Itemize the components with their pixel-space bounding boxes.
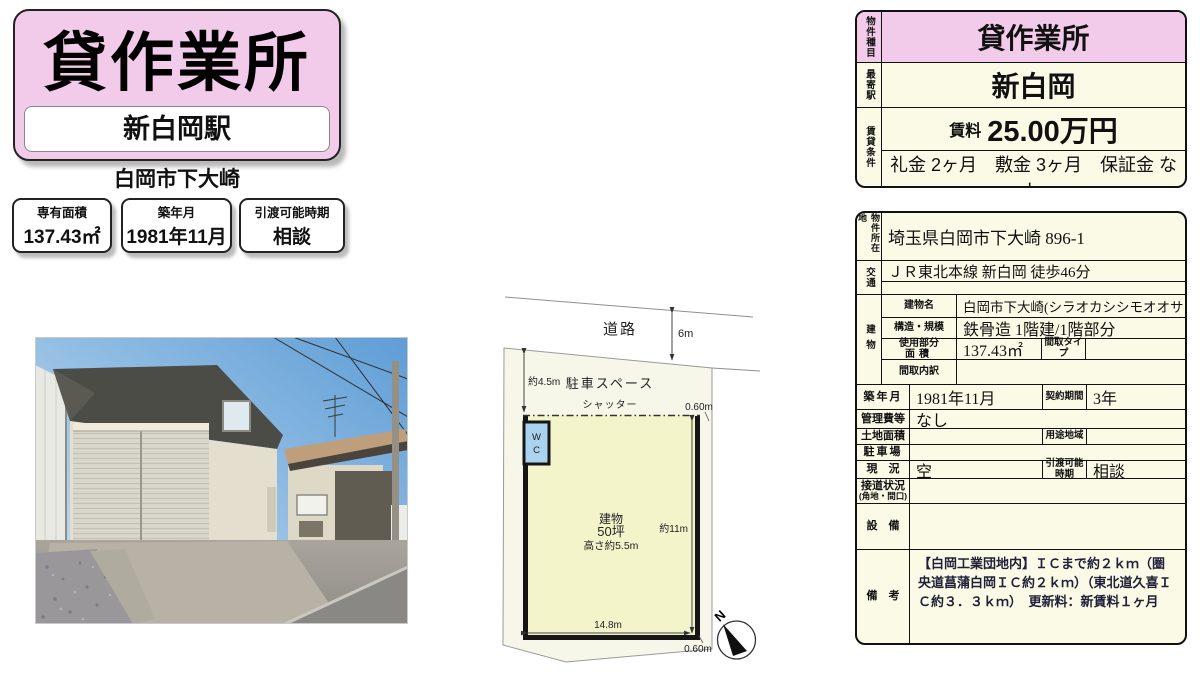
- equipment-box: [299, 521, 323, 537]
- handover-label-line1: 引渡可能: [1045, 459, 1083, 470]
- parking-label: 駐車スペース: [566, 376, 654, 391]
- badge-label: 引渡可能時期: [241, 206, 343, 220]
- north-compass: N: [711, 607, 755, 659]
- property-type-title: 貸作業所: [15, 13, 339, 113]
- parking-label: 駐車場: [857, 445, 910, 460]
- flyer-page: 貸作業所 新白岡駅 白岡市下大崎 専有面積 137.43㎡ 築年月 1981年1…: [0, 0, 1200, 692]
- row-status: 現 況 空 引渡可能 時期 相談: [857, 461, 1185, 479]
- management-value: なし: [910, 410, 1185, 428]
- road-label: 道路: [603, 321, 637, 338]
- row-structure: 構造・規模 鉄骨造 1階建/1階部分: [882, 318, 1185, 339]
- rent-cell: 賃料 25.00万円: [882, 108, 1185, 150]
- badge-built: 築年月 1981年11月: [121, 198, 232, 253]
- row-building-name: 建物名 白岡市下大崎(シラオカシシモオオサキ): [882, 295, 1185, 318]
- front-length-label: 14.8m: [594, 620, 622, 631]
- row-area: 使用部分 面積 137.43㎡ 間取タイプ: [882, 339, 1185, 360]
- row-access: 交通 ＪＲ東北本線 新白岡 徒歩46分: [857, 261, 1185, 295]
- row-building-group: 建物 建物名 白岡市下大崎(シラオカシシモオオサキ) 構造・規模 鉄骨造 1階建…: [857, 295, 1185, 385]
- structure-value: 鉄骨造 1階建/1階部分: [957, 318, 1185, 338]
- row-built: 築年月 1981年11月 契約期間 3年: [857, 385, 1185, 410]
- detail-table: 物件所在地 埼玉県白岡市下大崎 896-1 交通 ＪＲ東北本線 新白岡 徒歩46…: [855, 211, 1187, 645]
- property-type-value: 貸作業所: [882, 12, 1185, 62]
- side-building: [284, 429, 408, 543]
- access-label: 交通: [857, 261, 882, 294]
- side-window: [297, 495, 327, 515]
- row-terms: 賃貸条件 賃料 25.00万円 礼金 2ヶ月 敷金 3ヶ月 保証金 なし: [857, 108, 1185, 186]
- equipment-value: [910, 504, 1185, 549]
- north-label: N: [711, 607, 728, 624]
- station-value: 新白岡: [882, 63, 1185, 107]
- building-height-label: 高さ約5.5m: [584, 539, 639, 552]
- contract-value: 3年: [1087, 385, 1185, 409]
- wc-label-w: W: [532, 432, 541, 443]
- handover-value: 相談: [1087, 461, 1185, 478]
- badge-label: 専有面積: [14, 206, 110, 220]
- handover-label: 引渡可能 時期: [1043, 461, 1087, 478]
- badge-value: 137.43㎡: [14, 222, 110, 249]
- badge-label: 築年月: [123, 206, 230, 220]
- row-land: 土地面積 用途地域: [857, 429, 1185, 445]
- row-road-contact: 接道状況 (角地・間口): [857, 479, 1185, 504]
- row-station: 最寄駅 新白岡: [857, 63, 1185, 108]
- rent-value: 25.00万円: [987, 108, 1118, 150]
- layout-type-label: 間取タイプ: [1042, 339, 1086, 359]
- layout-type-value: [1086, 339, 1185, 359]
- area-label: 使用部分 面積: [882, 339, 957, 359]
- building-size-label: 50坪: [597, 524, 624, 539]
- gable-window: [223, 401, 250, 431]
- rent-label: 賃料: [949, 117, 981, 141]
- building-name-value: 白岡市下大崎(シラオカシシモオオサキ): [957, 295, 1185, 317]
- city-label: 白岡市下大崎: [13, 163, 341, 193]
- row-property-type: 物件種目 貸作業所: [857, 12, 1185, 63]
- building-name-label: 建物名: [882, 295, 957, 317]
- fees-value: 礼金 2ヶ月 敷金 3ヶ月 保証金 なし: [882, 151, 1185, 188]
- address-label: 物件所在地: [857, 213, 882, 260]
- structure-label: 構造・規模: [882, 318, 957, 338]
- badge-value: 1981年11月: [123, 222, 230, 249]
- side-length-label: 約11m: [659, 522, 688, 535]
- gap-bottom-label: 0.60m: [684, 644, 712, 655]
- station-label: 最寄駅: [857, 63, 882, 107]
- remarks-value: 【白岡工業団地内】ＩＣまで約２ｋｍ（圏央道菖蒲白岡ＩＣ約２ｋｍ）（東北道久喜ＩＣ…: [910, 550, 1185, 643]
- property-photo: [35, 337, 408, 624]
- wc-box: [524, 422, 549, 464]
- road-line-lower: [712, 368, 760, 371]
- land-value: [910, 429, 1043, 444]
- layout-detail-value: [957, 360, 1185, 384]
- road-line-upper: [505, 297, 753, 317]
- road-label-line2: (角地・間口): [859, 492, 907, 502]
- road-contact-value: [910, 479, 1185, 503]
- row-fees: 礼金 2ヶ月 敷金 3ヶ月 保証金 なし: [882, 151, 1185, 188]
- built-label: 築年月: [857, 385, 910, 409]
- shutter-label: シャッター: [583, 399, 638, 411]
- canopy-shadow: [335, 471, 393, 541]
- access-line1: ＪＲ東北本線 新白岡 徒歩46分: [882, 261, 1185, 282]
- row-layout-detail: 間取内訳: [882, 360, 1185, 384]
- area-value: 137.43㎡: [957, 339, 1042, 359]
- access-value: ＪＲ東北本線 新白岡 徒歩46分: [882, 261, 1185, 281]
- station-box: 新白岡駅: [24, 106, 330, 152]
- property-type-label: 物件種目: [857, 12, 882, 62]
- status-value: 空: [910, 461, 1043, 478]
- zoning-label: 用途地域: [1043, 429, 1087, 444]
- contract-label: 契約期間: [1043, 385, 1087, 409]
- row-rent: 賃料 25.00万円: [882, 108, 1185, 151]
- land-label: 土地面積: [857, 429, 910, 444]
- layout-detail-label: 間取内訳: [882, 360, 957, 384]
- downpipe: [267, 487, 276, 532]
- summary-table: 物件種目 貸作業所 最寄駅 新白岡 賃貸条件 賃料 25.00万円 礼金 2ヶ月…: [855, 10, 1187, 188]
- row-address: 物件所在地 埼玉県白岡市下大崎 896-1: [857, 213, 1185, 261]
- address-value: 埼玉県白岡市下大崎 896-1: [882, 213, 1185, 260]
- built-value: 1981年11月: [910, 385, 1043, 409]
- terms-label: 賃貸条件: [857, 108, 882, 186]
- title-card: 貸作業所 新白岡駅: [13, 9, 341, 161]
- road-contact-label: 接道状況 (角地・間口): [857, 479, 910, 503]
- row-parking: 駐車場: [857, 445, 1185, 461]
- row-management: 管理費等 なし: [857, 410, 1185, 429]
- area-label-line1: 使用部分: [899, 338, 939, 350]
- badge-handover: 引渡可能時期 相談: [239, 198, 345, 253]
- status-label: 現 況: [857, 461, 910, 478]
- zoning-value: [1087, 429, 1185, 444]
- row-equipment: 設 備: [857, 504, 1185, 550]
- building-label: 建物: [857, 295, 882, 384]
- gap-top-label: 0.60m: [685, 402, 713, 413]
- access-line2: [882, 282, 1185, 294]
- site-plan: 道路 6m 駐車スペース 約4.5m シャッター 0.60m 0.60m W C…: [470, 290, 780, 692]
- wc-label-c: C: [533, 445, 540, 456]
- row-remarks: 備 考 【白岡工業団地内】ＩＣまで約２ｋｍ（圏央道菖蒲白岡ＩＣ約２ｋｍ）（東北道…: [857, 550, 1185, 643]
- badge-area: 専有面積 137.43㎡: [12, 198, 112, 253]
- road-width-label: 6m: [678, 328, 693, 340]
- area-label-line2: 面積: [905, 349, 933, 361]
- access-value-2: [882, 282, 1185, 294]
- remarks-label: 備 考: [857, 550, 910, 643]
- badge-value: 相談: [241, 222, 343, 249]
- equipment-label: 設 備: [857, 504, 910, 549]
- management-label: 管理費等: [857, 410, 910, 428]
- parking-depth-label: 約4.5m: [528, 375, 560, 388]
